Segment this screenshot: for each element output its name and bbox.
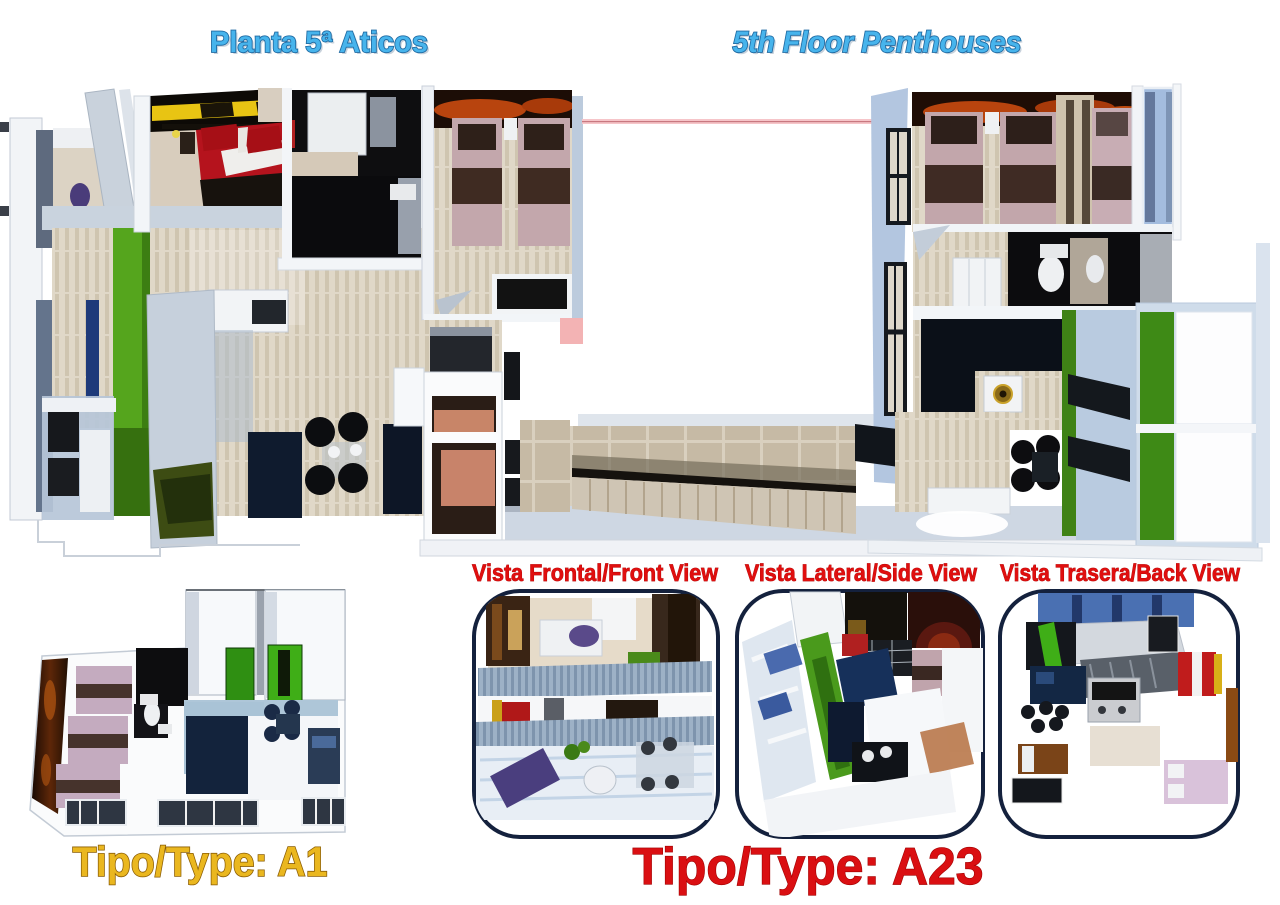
svg-text:Tipo/Type: A23: Tipo/Type: A23 (633, 838, 984, 896)
svg-text:Vista Trasera/Back View: Vista Trasera/Back View (1000, 560, 1240, 587)
svg-text:Vista Lateral/Side View: Vista Lateral/Side View (745, 560, 977, 587)
svg-text:Planta 5ª Aticos: Planta 5ª Aticos (210, 26, 428, 59)
svg-text:Vista Frontal/Front View: Vista Frontal/Front View (472, 560, 718, 587)
svg-text:5th Floor Penthouses: 5th Floor Penthouses (733, 26, 1022, 59)
svg-text:Tipo/Type: A1: Tipo/Type: A1 (73, 838, 328, 885)
